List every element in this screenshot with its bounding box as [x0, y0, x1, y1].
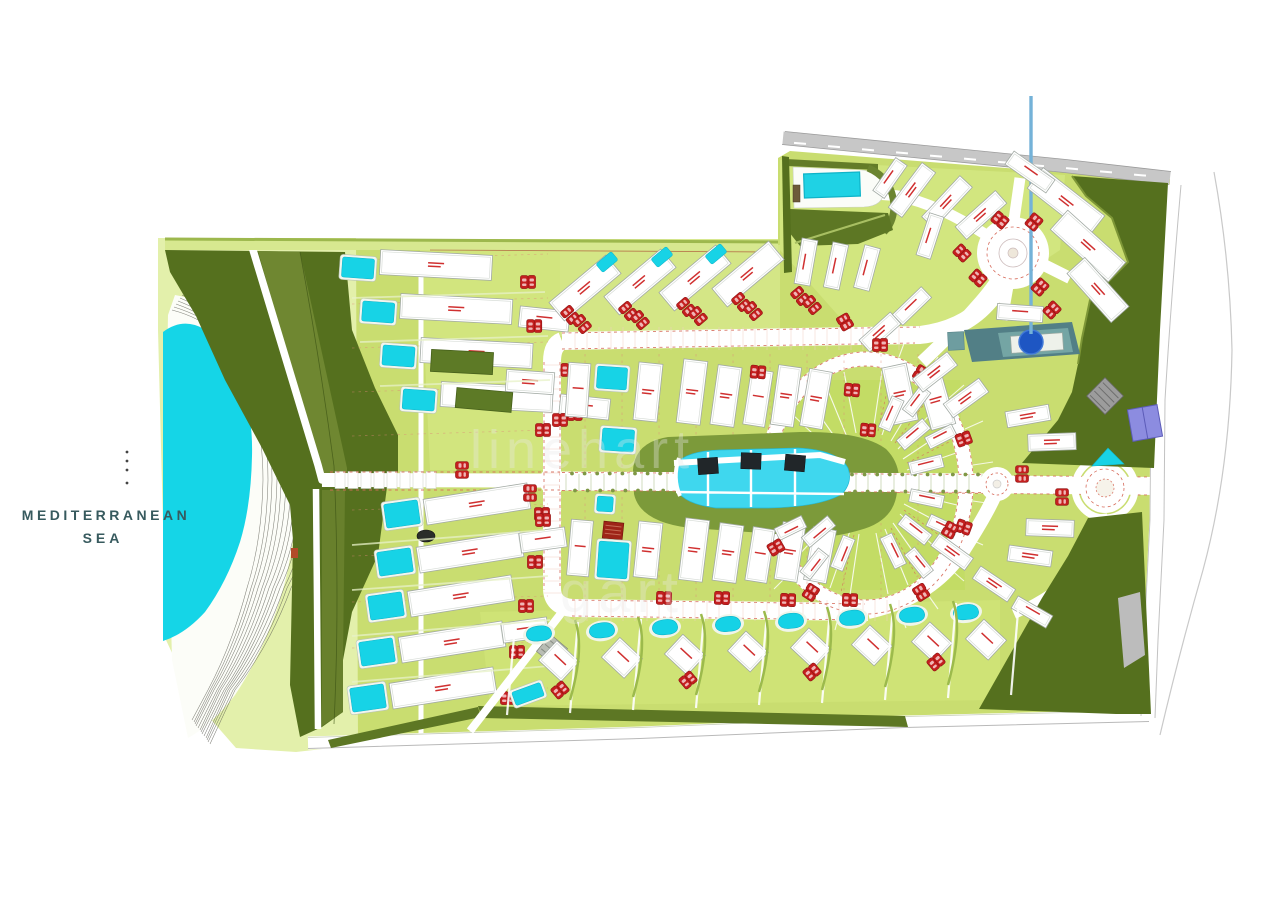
- svg-text:SEA: SEA: [83, 530, 124, 546]
- svg-text:linehart: linehart: [470, 420, 695, 480]
- svg-text:MEDITERRANEAN: MEDITERRANEAN: [22, 507, 190, 523]
- svg-text:gart: gart: [560, 560, 684, 625]
